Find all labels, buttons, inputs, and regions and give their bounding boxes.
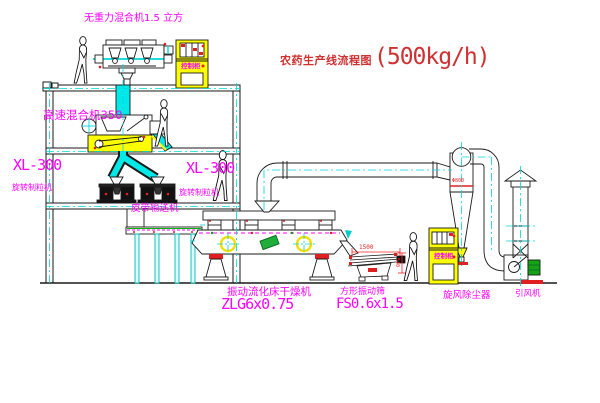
dimension-cyclone: Φ800: [452, 179, 464, 184]
diagram-title: 农药生产线流程图 (500kg/h): [280, 44, 490, 70]
label-granulator-left-name: 旋转制粒机: [12, 184, 52, 192]
label-dryer-model: ZLG6x0.75: [221, 297, 293, 312]
granulator-left-drawing: [97, 177, 136, 203]
label-control-cabinet-top: 控制柜: [181, 63, 201, 70]
label-gravity-mixer: 无重力混合机1.5 立方: [84, 14, 183, 24]
y-splitter-chute-drawing: [112, 151, 156, 178]
granulator-right-drawing: [138, 177, 177, 203]
label-granulator-right-name: 旋转制粒机: [179, 189, 219, 197]
process-flow-diagram: 农药生产线流程图 (500kg/h) 无重力混合机1.5 立方 高速混合机350…: [0, 0, 600, 403]
fluid-bed-dryer-drawing: [192, 201, 358, 280]
gravity-mixer-drawing: [93, 40, 173, 85]
label-sieve-model: FS0.6x1.5: [336, 297, 403, 311]
person-figure: [404, 233, 417, 281]
label-cyclone: 旋风除尘器: [443, 291, 491, 301]
person-figure: [74, 37, 87, 83]
label-granulator-left-model: XL-300: [13, 158, 61, 173]
label-fan: 引风机: [515, 290, 541, 299]
label-control-cabinet-right: 控制柜: [434, 253, 454, 260]
label-granulator-right-model: XL-300: [186, 161, 234, 176]
fan-and-stack-drawing: [504, 170, 543, 284]
label-high-speed-mixer: 高速混合机350: [43, 110, 122, 122]
belt-conveyor-drawing: [126, 209, 202, 283]
title-capacity: (500kg/h): [374, 44, 490, 70]
dimension-sieve-height: 540: [394, 258, 399, 267]
exhaust-duct-drawing: [257, 161, 437, 201]
label-belt-conveyor: 皮带输送机: [131, 204, 179, 214]
title-text: 农药生产线流程图: [280, 52, 372, 68]
dimension-sieve-width: 1500: [359, 245, 373, 251]
